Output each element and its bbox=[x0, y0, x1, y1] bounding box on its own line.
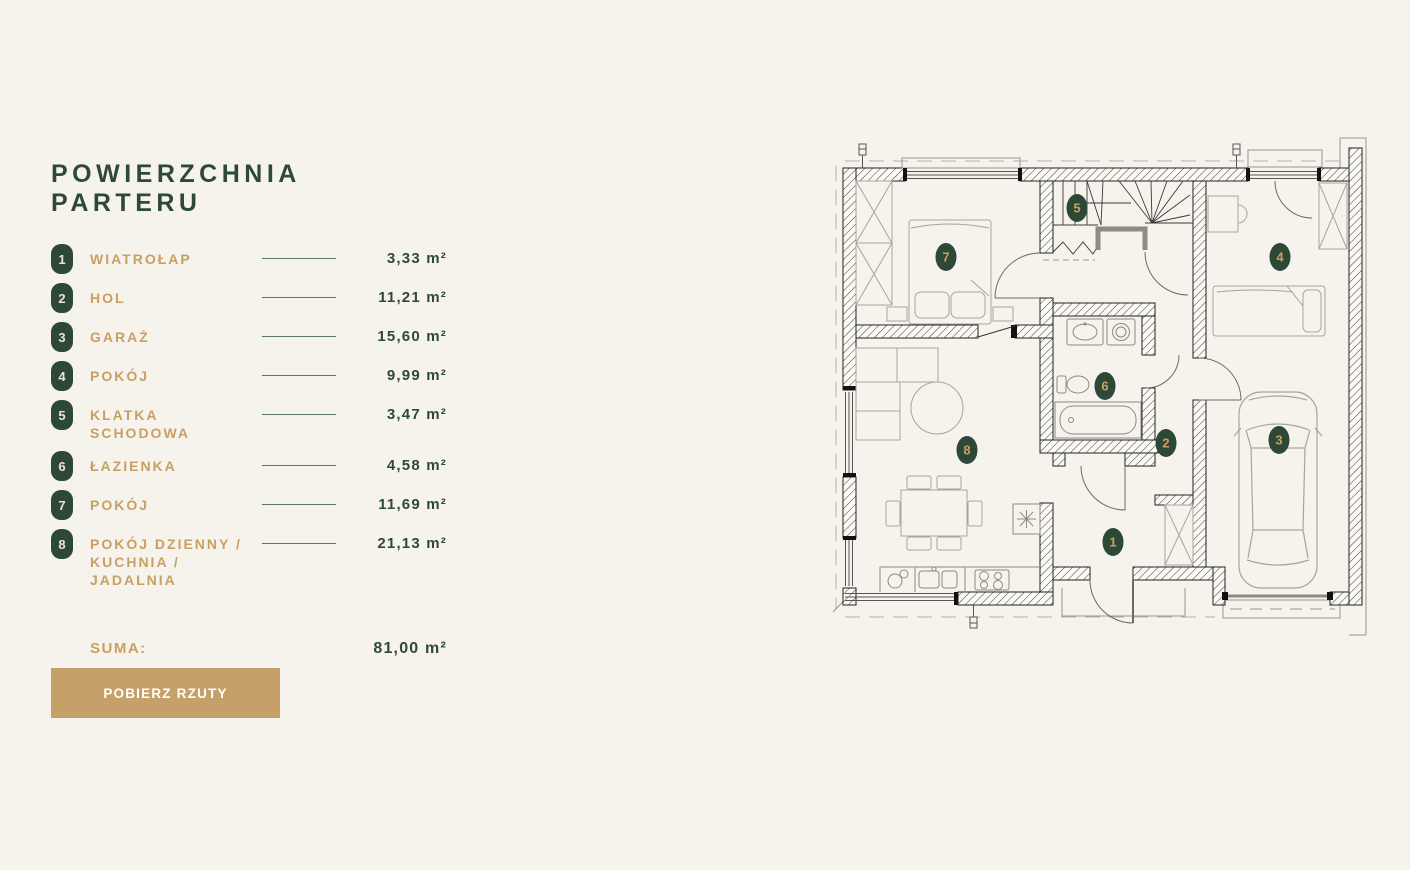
page-title: POWIERZCHNIA PARTERU bbox=[51, 160, 447, 218]
legend-row: 3 GARAŻ 15,60 m² bbox=[51, 322, 447, 352]
bathtub-icon bbox=[1055, 402, 1141, 438]
total-row: SUMA: 81,00 m² bbox=[51, 640, 447, 658]
plan-badge-2: 2 bbox=[1156, 429, 1177, 457]
leader-line bbox=[262, 504, 336, 505]
room-number-badge: 8 bbox=[51, 529, 73, 559]
car-top-view bbox=[1234, 392, 1322, 588]
floor-plan: 1 2 3 4 5 6 7 bbox=[825, 130, 1369, 646]
plan-badge-5: 5 bbox=[1067, 194, 1088, 222]
svg-text:8: 8 bbox=[963, 443, 970, 458]
leader-line bbox=[262, 258, 336, 259]
fridge-icon bbox=[1013, 504, 1040, 534]
round-rug bbox=[911, 382, 963, 434]
washing-machine-icon bbox=[1107, 319, 1135, 345]
plan-badge-8: 8 bbox=[957, 436, 978, 464]
room-label: ŁAZIENKA bbox=[90, 451, 262, 475]
page: POWIERZCHNIA PARTERU 1 WIATROŁAP 3,33 m²… bbox=[0, 0, 1410, 870]
bed-room4 bbox=[1213, 286, 1325, 336]
room-number-badge: 1 bbox=[51, 244, 73, 274]
room-label: POKÓJ bbox=[90, 361, 262, 385]
room-number-badge: 3 bbox=[51, 322, 73, 352]
wardrobe-room7 bbox=[856, 181, 892, 305]
svg-text:6: 6 bbox=[1101, 379, 1108, 394]
legend-row: 4 POKÓJ 9,99 m² bbox=[51, 361, 447, 391]
leader-line bbox=[262, 375, 336, 376]
leader-line bbox=[262, 297, 336, 298]
room-label: HOL bbox=[90, 283, 262, 307]
svg-text:5: 5 bbox=[1073, 201, 1080, 216]
legend-row: 2 HOL 11,21 m² bbox=[51, 283, 447, 313]
svg-text:7: 7 bbox=[942, 250, 949, 265]
plan-badge-6: 6 bbox=[1095, 372, 1116, 400]
leader-line bbox=[262, 336, 336, 337]
svg-text:3: 3 bbox=[1275, 433, 1282, 448]
legend-rows: 1 WIATROŁAP 3,33 m² 2 HOL 11,21 m² 3 GAR… bbox=[51, 244, 447, 598]
plan-badge-7: 7 bbox=[936, 243, 957, 271]
kitchen-sink-icon bbox=[919, 567, 957, 588]
stairs bbox=[1043, 181, 1193, 260]
legend-row: 5 KLATKA SCHODOWA 3,47 m² bbox=[51, 400, 447, 442]
sofa bbox=[856, 348, 938, 440]
room-area: 4,58 m² bbox=[357, 451, 447, 474]
total-value: 81,00 m² bbox=[357, 640, 447, 658]
desk-room4 bbox=[1208, 196, 1247, 232]
floor-plan-drawing: 1 2 3 4 5 6 7 bbox=[825, 130, 1369, 646]
washbasin-icon bbox=[1067, 319, 1103, 345]
room-number-badge: 4 bbox=[51, 361, 73, 391]
garage-door bbox=[1222, 592, 1333, 600]
room-area: 11,21 m² bbox=[357, 283, 447, 306]
cooktop-icon bbox=[975, 570, 1009, 590]
area-legend: POWIERZCHNIA PARTERU 1 WIATROŁAP 3,33 m²… bbox=[51, 160, 447, 658]
room-label: GARAŻ bbox=[90, 322, 262, 346]
room-area: 11,69 m² bbox=[357, 490, 447, 513]
room-area: 3,33 m² bbox=[357, 244, 447, 267]
leader-line bbox=[262, 465, 336, 466]
toilet-icon bbox=[1057, 376, 1089, 393]
svg-text:1: 1 bbox=[1109, 535, 1116, 550]
svg-text:2: 2 bbox=[1162, 436, 1169, 451]
bed-room7 bbox=[887, 220, 1013, 324]
room-number-badge: 6 bbox=[51, 451, 73, 481]
leader-line bbox=[262, 543, 336, 544]
room-area: 21,13 m² bbox=[357, 529, 447, 552]
room-number-badge: 5 bbox=[51, 400, 73, 430]
download-plans-button[interactable]: POBIERZ RZUTY bbox=[51, 668, 280, 718]
kitchen-counter bbox=[880, 504, 1040, 592]
room-number-badge: 7 bbox=[51, 490, 73, 520]
room-number-badge: 2 bbox=[51, 283, 73, 313]
wardrobe-room4 bbox=[1319, 183, 1347, 249]
room-area: 15,60 m² bbox=[357, 322, 447, 345]
svg-text:4: 4 bbox=[1276, 250, 1284, 265]
prep-plants-icon bbox=[888, 570, 908, 588]
room-area: 9,99 m² bbox=[357, 361, 447, 384]
legend-row: 1 WIATROŁAP 3,33 m² bbox=[51, 244, 447, 274]
legend-row: 8 POKÓJ DZIENNY / KUCHNIA / JADALNIA 21,… bbox=[51, 529, 447, 589]
room-area: 3,47 m² bbox=[357, 400, 447, 423]
legend-row: 7 POKÓJ 11,69 m² bbox=[51, 490, 447, 520]
room-label: POKÓJ bbox=[90, 490, 262, 514]
plan-badges: 1 2 3 4 5 6 7 bbox=[936, 194, 1291, 556]
legend-row: 6 ŁAZIENKA 4,58 m² bbox=[51, 451, 447, 481]
plan-badge-3: 3 bbox=[1269, 426, 1290, 454]
room-label: KLATKA SCHODOWA bbox=[90, 400, 262, 442]
plan-badge-1: 1 bbox=[1103, 528, 1124, 556]
total-label: SUMA: bbox=[90, 640, 147, 657]
plan-badge-4: 4 bbox=[1270, 243, 1291, 271]
dining-table bbox=[886, 476, 982, 550]
room-label: POKÓJ DZIENNY / KUCHNIA / JADALNIA bbox=[90, 529, 262, 589]
leader-line bbox=[262, 414, 336, 415]
closet-hall bbox=[1165, 505, 1193, 565]
room-label: WIATROŁAP bbox=[90, 244, 262, 268]
